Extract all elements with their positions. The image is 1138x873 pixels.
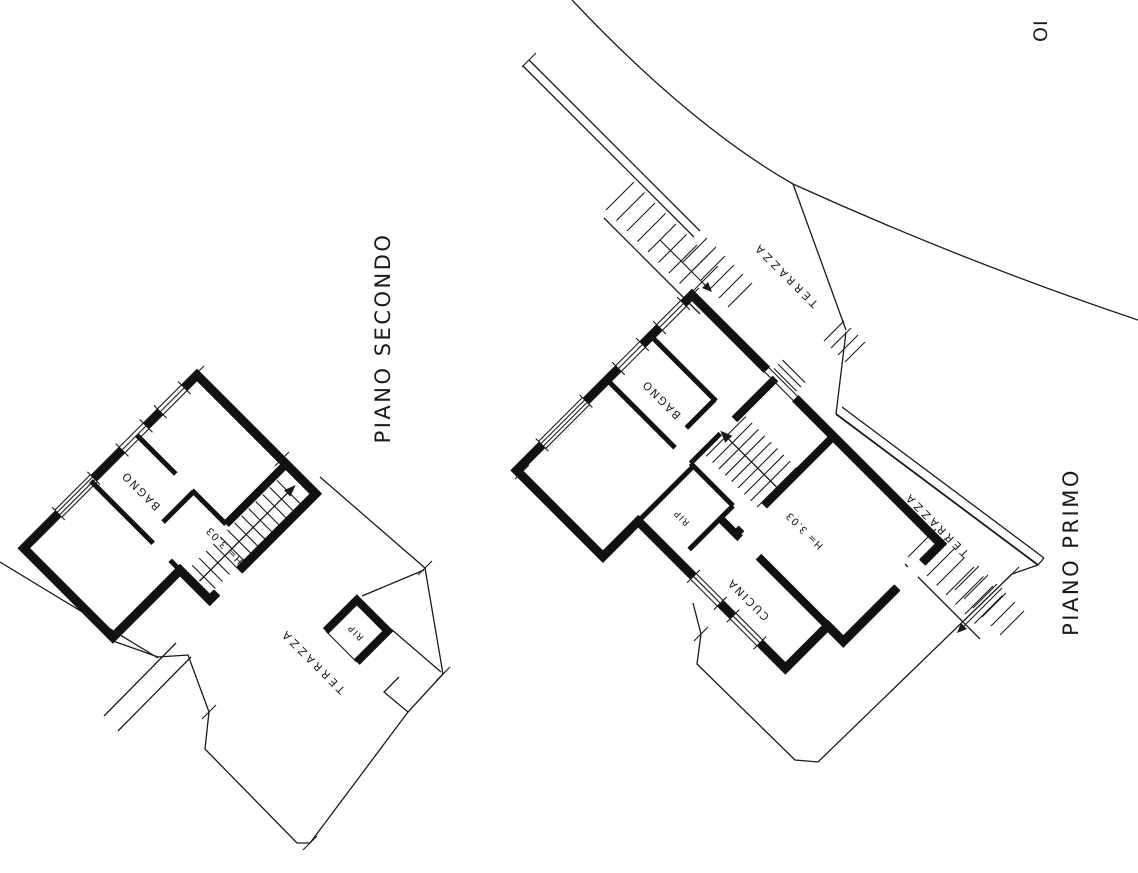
interior-stairs (700, 411, 798, 509)
storage-label: RIP (346, 621, 366, 641)
first-floor-plan: BAGNO RIP CUCINA H= 3.03 TERRAZZA TERRAZ… (510, 227, 1021, 738)
ceiling-height-note: H= 3.03 (204, 524, 246, 566)
storage-label: RIP (672, 507, 692, 527)
edge-clipped-label: OI (1030, 19, 1052, 42)
first-floor-title: PIANO PRIMO (1059, 468, 1083, 636)
site-boundary (572, 0, 1138, 330)
external-stair-top (522, 53, 752, 314)
second-floor-title: PIANO SECONDO (371, 233, 395, 444)
floor-plan-sheet: BAGNO RIP CUCINA H= 3.03 TERRAZZA TERRAZ… (0, 0, 1138, 873)
bathroom-label: BAGNO (118, 468, 163, 513)
second-floor-plan: BAGNO H= 3.03 RIP TERRAZZA (17, 369, 429, 781)
terrace-top-label: TERRAZZA (750, 240, 821, 311)
exterior-walls (24, 375, 316, 667)
ceiling-height-note: H= 3.03 (784, 509, 826, 551)
terrace-label: TERRAZZA (277, 626, 348, 697)
floor-plan-drawing: BAGNO RIP CUCINA H= 3.03 TERRAZZA TERRAZ… (0, 0, 1138, 873)
second-floor-terrace (0, 477, 450, 850)
